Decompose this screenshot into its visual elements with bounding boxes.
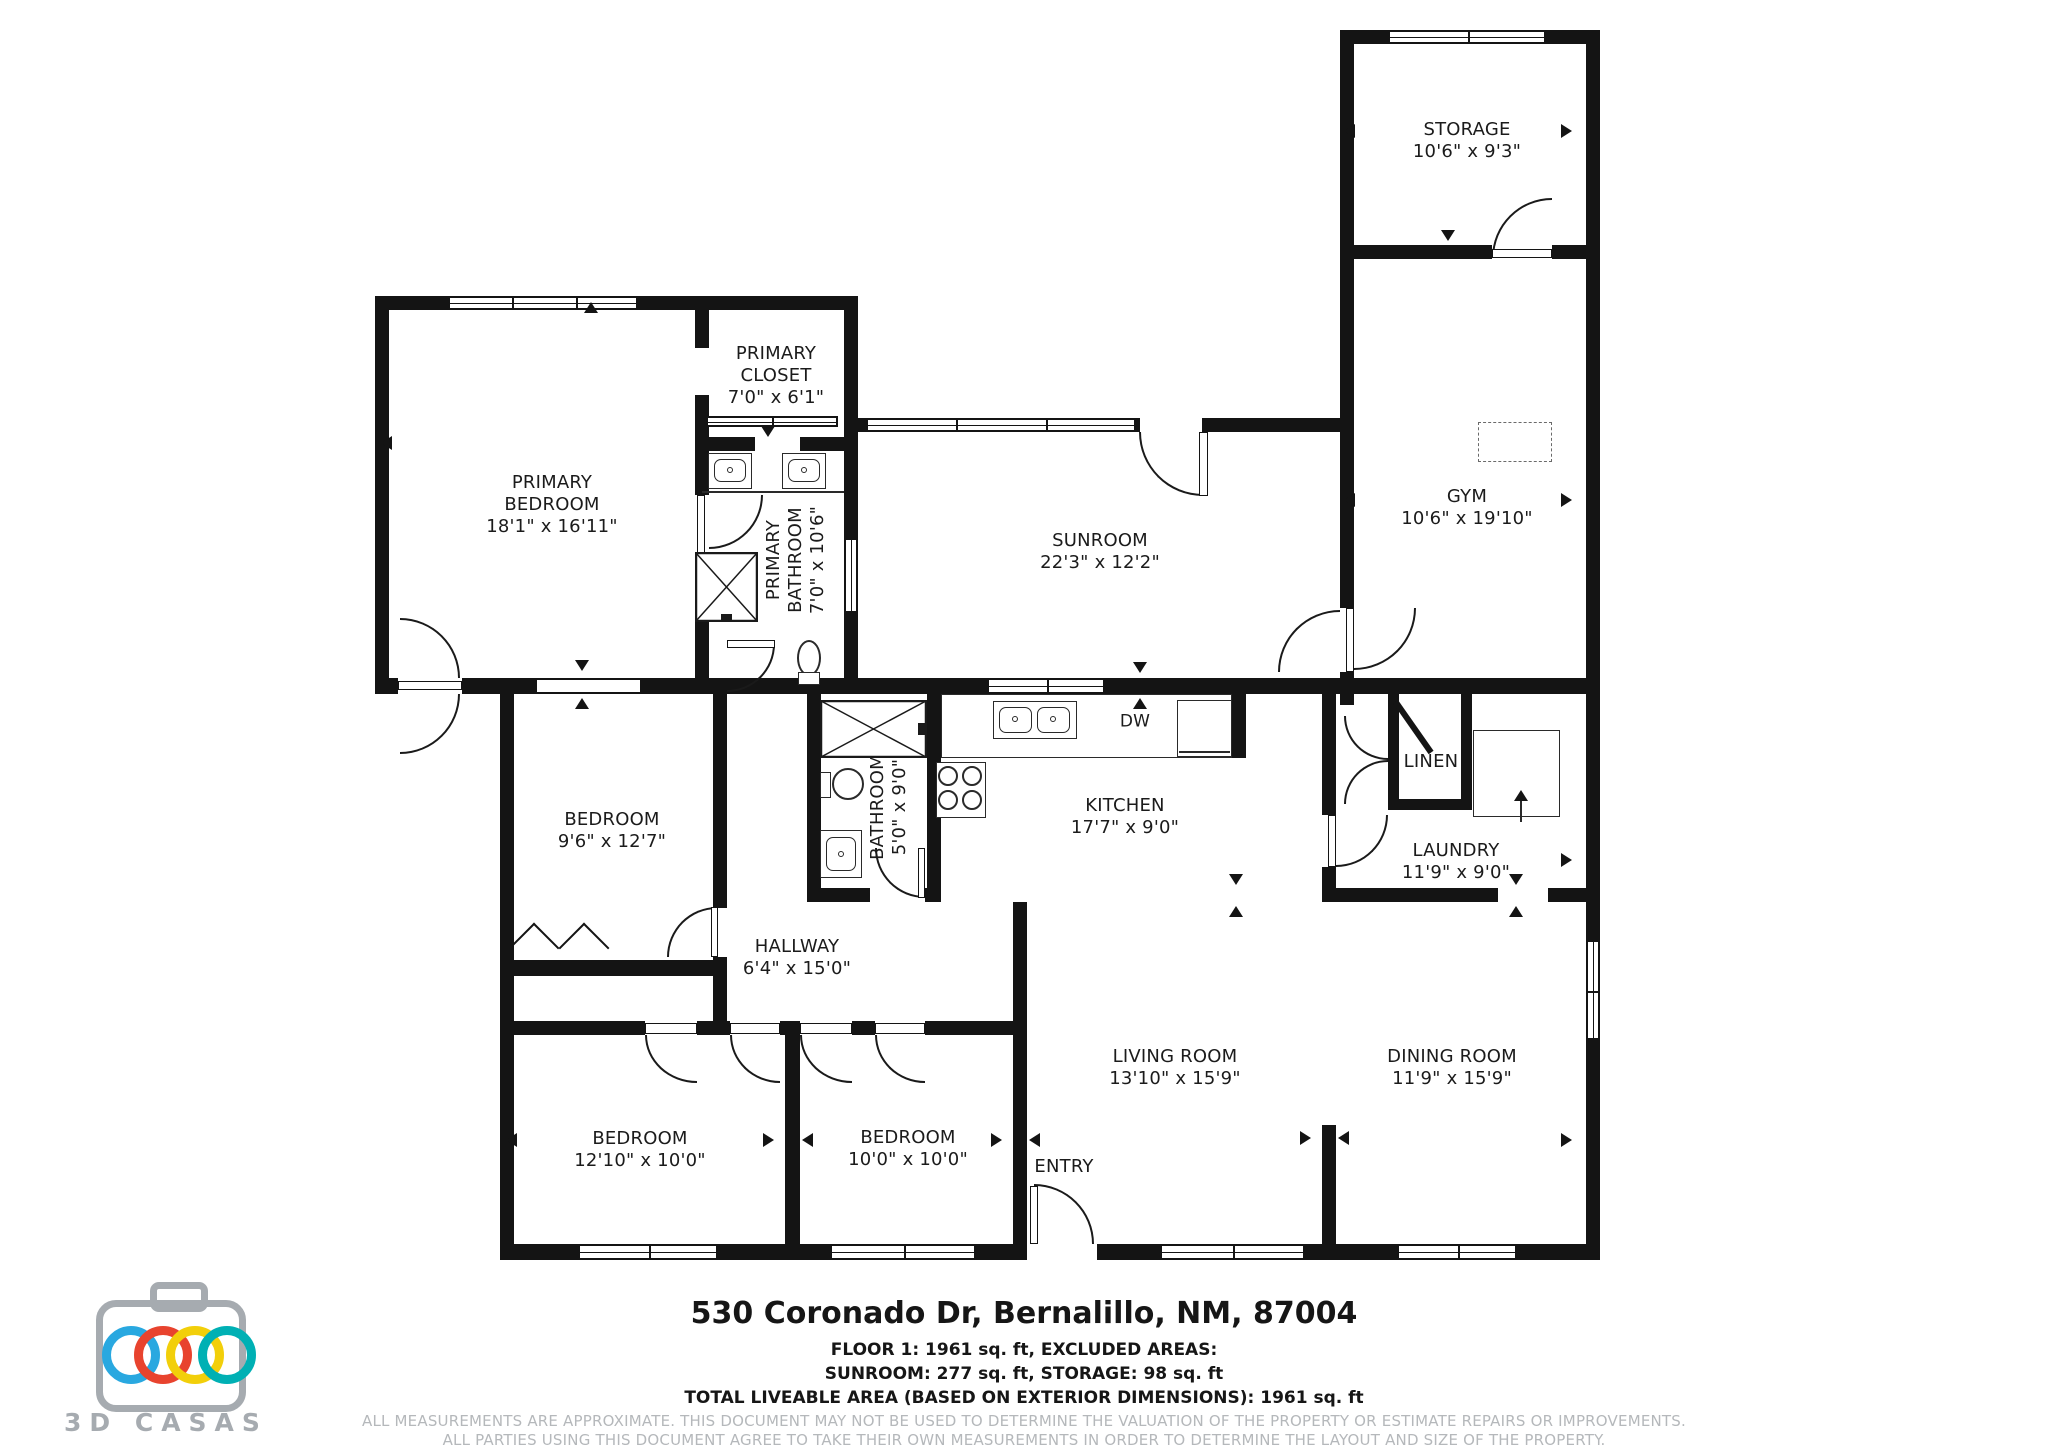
door-arc — [800, 1035, 852, 1083]
wall-segment — [925, 888, 941, 902]
window — [578, 1244, 718, 1260]
wall-segment — [1013, 902, 1027, 1258]
wall-segment — [852, 1021, 875, 1035]
disclaimer-line-2: ALL PARTIES USING THIS DOCUMENT AGREE TO… — [0, 1431, 2048, 1448]
door-arc — [1344, 760, 1388, 804]
window — [987, 678, 1105, 694]
wall-segment — [1586, 44, 1600, 940]
faucet — [1012, 716, 1018, 722]
refrigerator — [1177, 700, 1232, 757]
toilet-tank — [820, 772, 831, 798]
window — [448, 296, 638, 310]
door-leaf — [697, 495, 705, 557]
door-arc — [1336, 815, 1388, 867]
room-label-living-room: LIVING ROOM 13'10" x 15'9" — [1109, 1046, 1241, 1090]
direction-marker — [381, 436, 392, 450]
direction-marker — [575, 660, 589, 671]
direction-marker — [584, 302, 598, 313]
room-label-kitchen: KITCHEN 17'7" x 9'0" — [1071, 795, 1179, 839]
door-arc — [667, 907, 717, 957]
door-arc — [875, 1035, 925, 1083]
floor-plan-page: STORAGE 10'6" x 9'3" GYM 10'6" x 19'10" … — [0, 0, 2048, 1448]
direction-marker — [1441, 230, 1455, 241]
disclaimer-line-1: ALL MEASUREMENTS ARE APPROXIMATE. THIS D… — [0, 1412, 2048, 1430]
direction-marker — [506, 1133, 517, 1147]
cased-opening — [537, 678, 640, 694]
wall-segment — [1232, 694, 1246, 758]
door-opening — [1140, 418, 1202, 432]
room-label-bedroom-3: BEDROOM 12'10" x 10'0" — [574, 1128, 706, 1172]
window — [844, 538, 858, 613]
room-label-storage: STORAGE 10'6" x 9'3" — [1413, 119, 1521, 163]
window — [830, 1244, 976, 1260]
washer-dryer — [1473, 730, 1560, 817]
room-label-primary-closet: PRIMARY CLOSET 7'0" x 6'1" — [721, 343, 831, 409]
wall-segment — [1322, 867, 1336, 888]
window — [1586, 940, 1600, 1040]
utility-arrow — [1514, 790, 1528, 801]
room-label-gym: GYM 10'6" x 19'10" — [1401, 486, 1533, 530]
faucet — [838, 851, 844, 857]
wall-segment — [807, 888, 870, 902]
direction-marker — [1344, 493, 1355, 507]
wall-segment — [695, 310, 709, 348]
wall-segment — [844, 310, 858, 538]
wall-segment — [1354, 245, 1492, 259]
toilet — [797, 640, 821, 676]
room-label-dining-room: DINING ROOM 11'9" x 15'9" — [1387, 1046, 1517, 1090]
room-label-bedroom-4: BEDROOM 10'0" x 10'0" — [848, 1127, 968, 1171]
door-leaf — [645, 1023, 697, 1034]
wall-segment — [925, 1021, 1027, 1035]
room-label-hallway: HALLWAY 6'4" x 15'0" — [743, 936, 851, 980]
room-label-bathroom: BATHROOM 5'0" x 9'0" — [867, 754, 911, 860]
door-leaf — [398, 681, 462, 690]
dishwasher-label: DW — [1120, 712, 1150, 733]
direction-marker — [1300, 1131, 1311, 1145]
faucet — [727, 467, 733, 473]
room-label-entry: ENTRY — [1034, 1156, 1093, 1178]
door-arc — [1034, 1184, 1094, 1244]
wall-segment — [713, 694, 727, 908]
wall-segment — [1461, 694, 1472, 810]
door-arc — [645, 1035, 697, 1083]
wall-segment — [375, 296, 389, 694]
direction-marker — [761, 426, 775, 437]
window — [1397, 1244, 1517, 1260]
wall-segment — [695, 437, 755, 451]
door-opening — [1027, 1244, 1097, 1260]
door-arc — [400, 694, 460, 754]
wall-segment — [1322, 1125, 1336, 1244]
direction-marker — [1344, 124, 1355, 138]
property-address: 530 Coronado Dr, Bernalillo, NM, 87004 — [0, 1296, 2048, 1331]
window — [866, 418, 1136, 432]
stove-burner — [938, 790, 958, 810]
wall-segment — [500, 694, 514, 1258]
direction-marker — [991, 1133, 1002, 1147]
door-arc — [1139, 432, 1203, 496]
gym-skylight — [1478, 422, 1552, 462]
faucet — [1050, 716, 1056, 722]
floor-area-line: FLOOR 1: 1961 sq. ft, EXCLUDED AREAS: — [0, 1340, 2048, 1360]
door-leaf — [1199, 432, 1208, 496]
wall-segment — [1322, 694, 1336, 815]
logo-brand-text: 3D CASAS — [64, 1408, 268, 1437]
direction-marker — [763, 1133, 774, 1147]
door-leaf — [875, 1023, 925, 1034]
door-leaf — [1492, 249, 1552, 258]
direction-marker — [1509, 906, 1523, 917]
direction-marker — [802, 1133, 813, 1147]
room-label-linen: LINEN — [1404, 751, 1459, 773]
window — [1160, 1244, 1305, 1260]
door-arc — [400, 618, 460, 678]
direction-marker — [1133, 698, 1147, 709]
stove-burner — [962, 766, 982, 786]
door-leaf — [1346, 608, 1354, 672]
wall-segment — [844, 613, 858, 678]
direction-marker — [1029, 1133, 1040, 1147]
direction-marker — [1561, 1133, 1572, 1147]
direction-marker — [1229, 874, 1243, 885]
room-label-sunroom: SUNROOM 22'3" x 12'2" — [1040, 530, 1160, 574]
direction-marker — [1509, 874, 1523, 885]
room-label-primary-bathroom: PRIMARY BATHROOM 7'0" x 10'6" — [763, 493, 829, 628]
stove-burner — [962, 790, 982, 810]
wall-segment — [780, 1021, 800, 1035]
faucet — [801, 467, 807, 473]
direction-marker — [1561, 493, 1572, 507]
door-leaf — [800, 1023, 852, 1034]
wall-segment — [500, 1021, 645, 1035]
door-leaf — [918, 848, 925, 898]
door-arc — [1344, 716, 1388, 760]
wall-segment — [1586, 1040, 1600, 1258]
door-leaf — [1328, 815, 1336, 867]
room-label-primary-bedroom: PRIMARY BEDROOM 18'1" x 16'11" — [486, 472, 618, 538]
bathtub — [820, 700, 927, 758]
wall-segment — [1552, 245, 1600, 259]
excluded-areas-line: SUNROOM: 277 sq. ft, STORAGE: 98 sq. ft — [0, 1364, 2048, 1384]
toilet — [832, 768, 864, 800]
direction-marker — [1338, 1131, 1349, 1145]
room-label-bedroom-2: BEDROOM 9'6" x 12'7" — [558, 809, 666, 853]
door-leaf — [727, 640, 775, 648]
door-leaf — [711, 907, 718, 957]
logo-ring-teal-icon — [198, 1326, 256, 1384]
direction-marker — [1561, 124, 1572, 138]
window — [1388, 30, 1546, 44]
toilet-tank — [798, 672, 820, 685]
wall-segment — [1388, 799, 1472, 810]
utility-line — [1520, 800, 1522, 822]
refrigerator-door-line — [1179, 751, 1230, 753]
room-label-laundry: LAUNDRY 11'9" x 9'0" — [1402, 840, 1510, 884]
door-arc — [730, 1035, 780, 1083]
wall-segment — [697, 1021, 730, 1035]
door-arc — [709, 495, 763, 549]
wall-segment — [1548, 888, 1586, 902]
wall-segment — [1388, 694, 1399, 810]
door-leaf — [730, 1023, 780, 1034]
direction-marker — [575, 698, 589, 709]
shower — [695, 552, 758, 622]
total-area-line: TOTAL LIVEABLE AREA (BASED ON EXTERIOR D… — [0, 1388, 2048, 1408]
direction-marker — [1229, 906, 1243, 917]
door-arc — [1354, 608, 1416, 670]
bifold-door — [1393, 700, 1433, 754]
door-arc — [1278, 610, 1340, 672]
direction-marker — [1133, 662, 1147, 673]
stove-burner — [938, 766, 958, 786]
door-leaf — [1030, 1186, 1038, 1244]
wall-segment — [1322, 888, 1498, 902]
wall-segment — [807, 694, 821, 888]
direction-marker — [1561, 853, 1572, 867]
wall-segment — [785, 1035, 800, 1244]
